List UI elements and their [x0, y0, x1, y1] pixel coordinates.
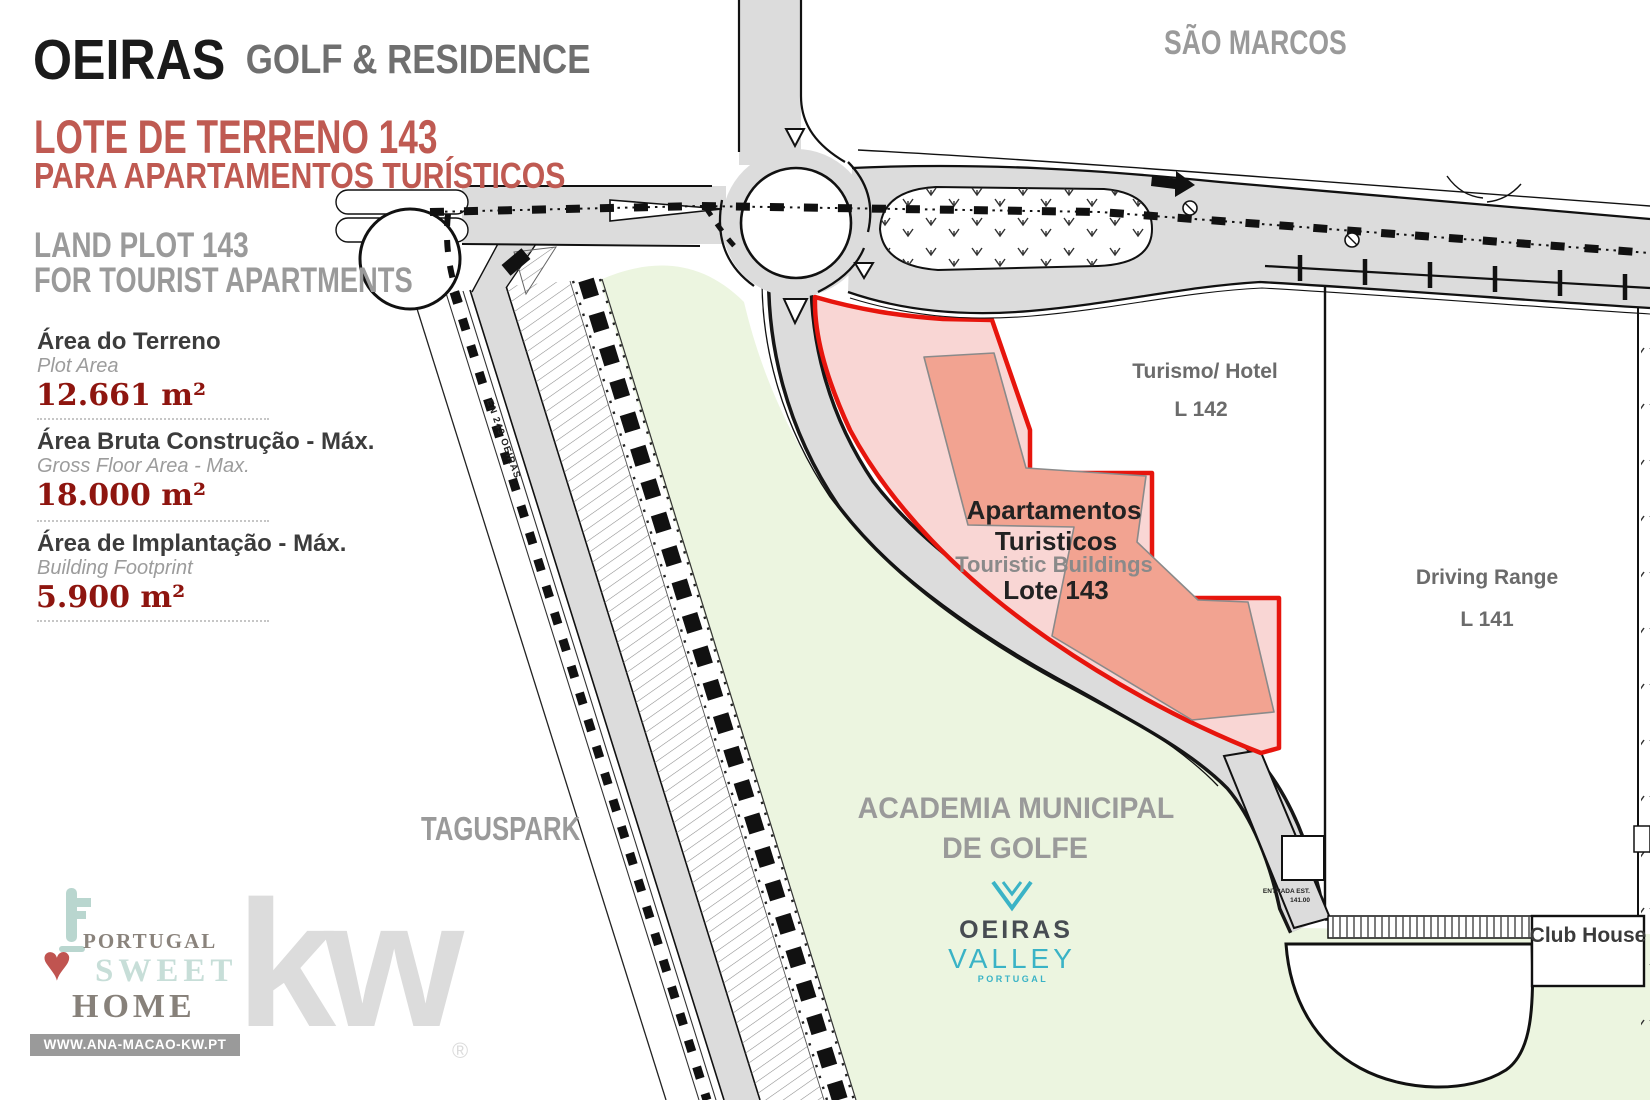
plot-143-label-line1: Apartamentos	[967, 495, 1142, 526]
kw-reg: ®	[452, 1038, 468, 1064]
club-house-label: Club House	[1530, 924, 1647, 948]
area-label-sao-marcos: SÃO MARCOS	[1164, 26, 1398, 60]
stat-footprint-value: 5.900 m²	[36, 580, 185, 615]
academia-label-line2: DE GOLFE	[938, 834, 1091, 864]
oeiras-valley-name: OEIRAS	[959, 916, 1073, 945]
plot-142-label: Turismo/ Hotel	[1132, 360, 1277, 384]
psh-url: WWW.ANA-MACAO-KW.PT	[44, 1037, 227, 1052]
entrance-label-line2: 141.00	[1258, 897, 1310, 904]
stat-plot-area-sublabel: Plot Area	[37, 355, 119, 378]
stat-plot-area-label: Área do Terreno	[37, 328, 221, 356]
psh-line1: PORTUGAL	[83, 929, 217, 954]
roundabout-island	[741, 168, 851, 278]
title-en-line2: FOR TOURIST APARTMENTS	[34, 263, 519, 298]
brand-suffix: GOLF & RESIDENCE	[246, 39, 591, 80]
header: OEIRAS GOLF & RESIDENCE	[33, 32, 661, 89]
kw-logo: kw	[236, 915, 452, 1065]
entrance-label-line1: ENTRADA EST.	[1258, 888, 1310, 895]
stat-gross-area-value: 18.000 m²	[36, 478, 206, 513]
psh-line2: SWEET	[95, 955, 237, 988]
plot-142-number: L 142	[1174, 398, 1227, 422]
title-en-line1: LAND PLOT 143	[34, 228, 302, 263]
brand-title: OEIRAS	[33, 32, 225, 89]
psh-url-bar: WWW.ANA-MACAO-KW.PT	[30, 1034, 240, 1056]
stat-footprint-sublabel: Building Footprint	[37, 557, 193, 580]
heart-icon: ♥	[42, 938, 72, 988]
divider	[37, 620, 269, 622]
oeiras-valley-sub: VALLEY	[948, 943, 1076, 975]
area-label-taguspark: TAGUSPARK	[421, 812, 625, 845]
oeiras-valley-logo	[992, 880, 1033, 912]
stat-gross-area-sublabel: Gross Floor Area - Max.	[37, 455, 250, 478]
plot-141-label: Driving Range	[1416, 566, 1558, 590]
divider	[37, 520, 269, 522]
plot-141-number: L 141	[1460, 608, 1513, 632]
valley-v-icon	[991, 880, 1033, 912]
title-pt-line1: LOTE DE TERRENO 143	[34, 113, 572, 160]
plot-143-label-line4: Lote 143	[1003, 575, 1109, 606]
oeiras-valley-country: PORTUGAL	[978, 974, 1049, 984]
divider	[37, 418, 269, 420]
psh-line3: HOME	[72, 990, 196, 1024]
kw-text: kw	[236, 915, 452, 1014]
stat-gross-area-label: Área Bruta Construção - Máx.	[37, 428, 374, 456]
stat-footprint-label: Área de Implantação - Máx.	[37, 530, 346, 558]
title-pt-line2: PARA APARTAMENTOS TURÍSTICOS	[34, 158, 667, 194]
stat-plot-area-value: 12.661 m²	[36, 378, 206, 413]
academia-label-line1: ACADEMIA MUNICIPAL	[849, 794, 1182, 824]
